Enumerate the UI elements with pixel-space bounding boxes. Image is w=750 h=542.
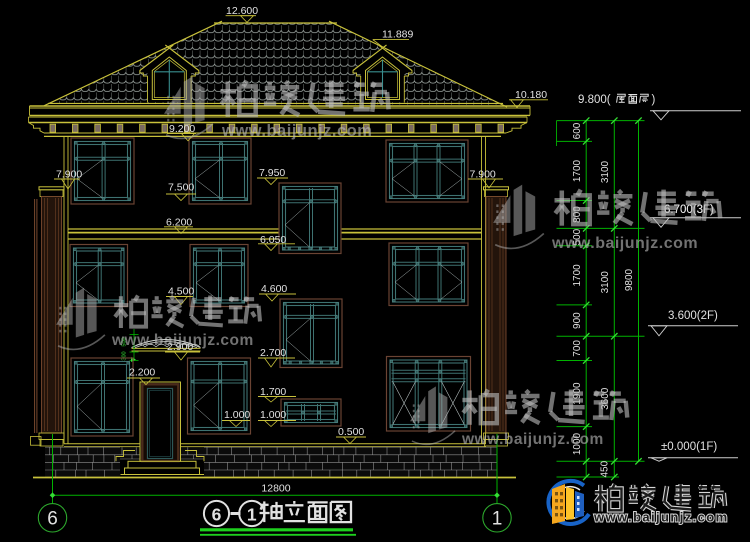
svg-text:0.500: 0.500 — [338, 426, 364, 438]
svg-text:2.700: 2.700 — [260, 347, 286, 359]
svg-text:12800: 12800 — [261, 483, 290, 495]
svg-text:): ) — [652, 94, 656, 106]
svg-text:3100: 3100 — [600, 160, 611, 183]
svg-text:6: 6 — [47, 509, 58, 530]
svg-text:1700: 1700 — [572, 264, 583, 287]
svg-text:7.950: 7.950 — [259, 167, 285, 179]
svg-text:±0.000(1F): ±0.000(1F) — [661, 441, 717, 453]
svg-text:300: 300 — [122, 351, 128, 360]
svg-text:www.baijunjz.com: www.baijunjz.com — [461, 431, 604, 448]
svg-text:1: 1 — [492, 509, 503, 530]
svg-text:1700: 1700 — [572, 159, 583, 182]
svg-text:10.180: 10.180 — [515, 89, 547, 101]
svg-text:4.600: 4.600 — [261, 283, 287, 295]
svg-text:1.000: 1.000 — [260, 409, 286, 421]
svg-text:450: 450 — [600, 460, 611, 477]
svg-text:900: 900 — [572, 312, 583, 329]
svg-text:700: 700 — [572, 340, 583, 357]
svg-text:1.000: 1.000 — [224, 409, 250, 421]
svg-text:7.500: 7.500 — [168, 182, 194, 194]
svg-text:2.200: 2.200 — [129, 367, 155, 379]
svg-text:3100: 3100 — [600, 271, 611, 294]
svg-text:11.889: 11.889 — [382, 29, 413, 41]
svg-text:3.600(2F): 3.600(2F) — [668, 310, 718, 322]
svg-text:9800: 9800 — [624, 268, 635, 291]
svg-text:1: 1 — [247, 505, 257, 525]
svg-text:www.baijunjz.com: www.baijunjz.com — [111, 332, 254, 349]
svg-text:600: 600 — [572, 122, 583, 139]
svg-text:6: 6 — [212, 505, 222, 525]
svg-text:9.800(: 9.800( — [578, 94, 611, 106]
svg-text:www.baijunjz.com: www.baijunjz.com — [551, 235, 698, 252]
svg-text:www.baijunjz.com: www.baijunjz.com — [593, 510, 729, 525]
svg-text:www.baijunjz.com: www.baijunjz.com — [221, 122, 372, 140]
